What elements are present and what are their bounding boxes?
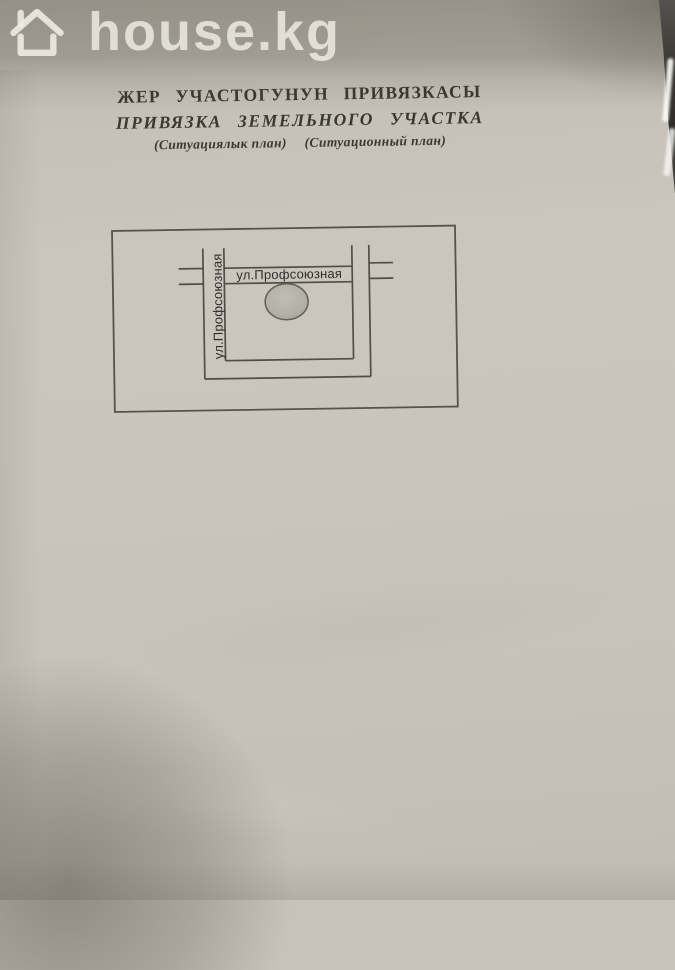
subtitle-russian: (Ситуационный план) xyxy=(304,133,446,150)
photo-of-document: { "watermark": { "logo_text": "house.kg"… xyxy=(0,0,675,900)
street-label-vertical: ул.Профсоюзная xyxy=(209,253,226,359)
subtitle-kyrgyz: (Ситуациялык план) xyxy=(154,135,287,152)
bottom-left-shadow xyxy=(0,660,290,970)
plot-ellipse xyxy=(265,283,309,320)
street-label-horizontal: ул.Профсоюзная xyxy=(236,266,342,283)
bottom-edge-shade xyxy=(0,860,675,900)
situational-plan-diagram: ул.Профсоюзная ул.Профсоюзная xyxy=(99,212,467,418)
document-title: ЖЕР УЧАСТОГУНУН ПРИВЯЗКАСЫ ПРИВЯЗКА ЗЕМЕ… xyxy=(0,79,600,155)
title-kyrgyz: ЖЕР УЧАСТОГУНУН ПРИВЯЗКАСЫ xyxy=(0,79,600,109)
